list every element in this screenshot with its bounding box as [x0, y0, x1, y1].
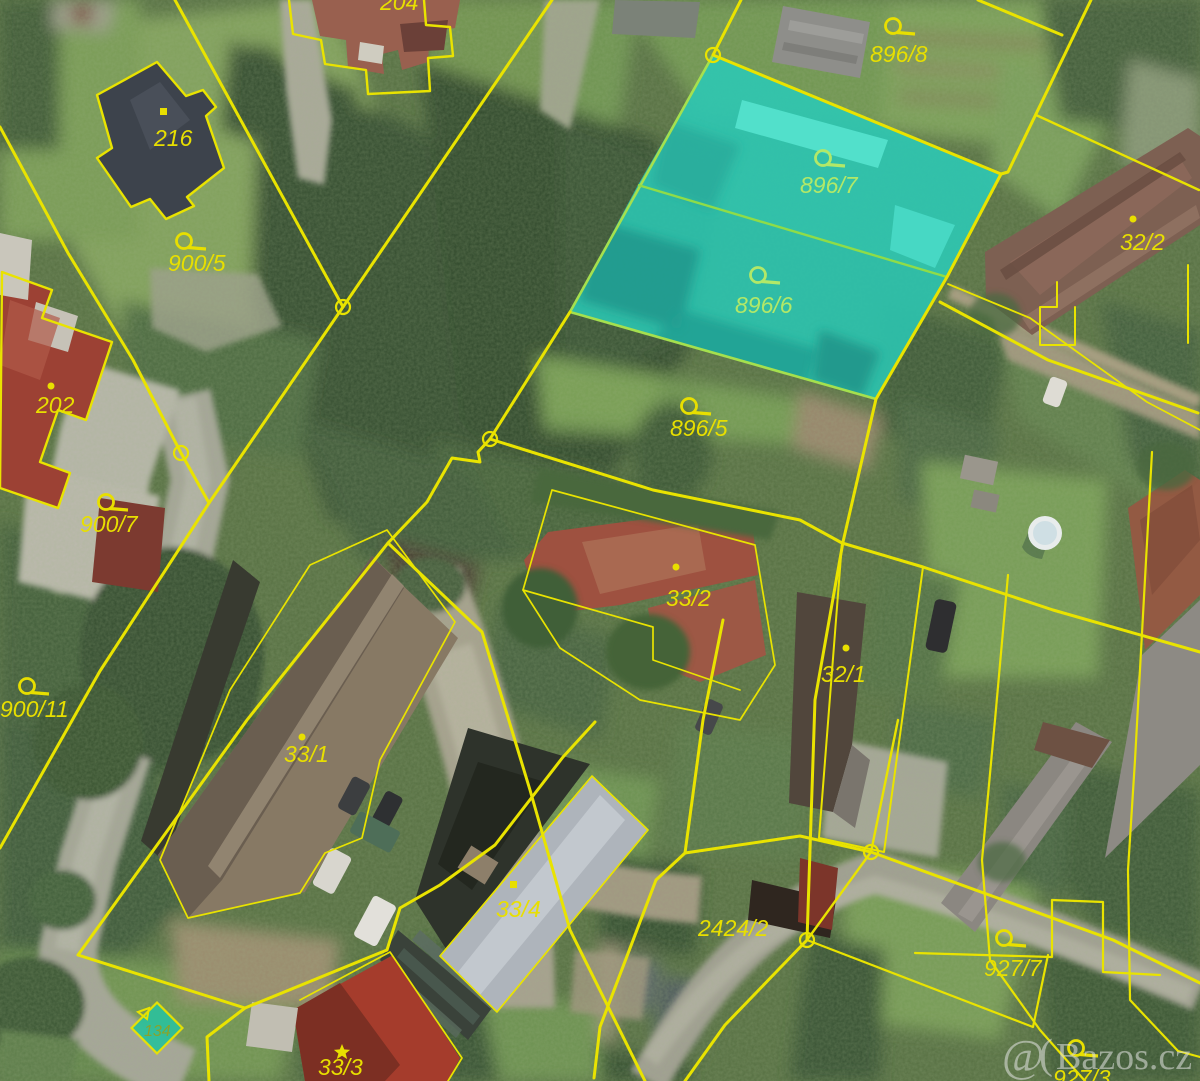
svg-text:33/3: 33/3 — [318, 1054, 363, 1080]
svg-text:204: 204 — [379, 0, 418, 15]
svg-text:896/5: 896/5 — [670, 415, 728, 441]
svg-text:896/8: 896/8 — [870, 41, 928, 67]
svg-text:Bazos.cz: Bazos.cz — [1056, 1036, 1192, 1078]
svg-text:216: 216 — [153, 125, 193, 151]
svg-text:33/2: 33/2 — [666, 585, 711, 611]
svg-text:33/1: 33/1 — [284, 741, 329, 767]
svg-text:2424/2: 2424/2 — [697, 915, 769, 941]
svg-text:927/7: 927/7 — [984, 955, 1043, 981]
svg-text:32/2: 32/2 — [1120, 229, 1165, 255]
svg-text:202: 202 — [35, 392, 75, 418]
svg-text:900/5: 900/5 — [168, 250, 226, 276]
svg-text:134: 134 — [144, 1023, 171, 1040]
svg-text:33/4: 33/4 — [496, 896, 541, 922]
svg-text:900/11: 900/11 — [0, 696, 69, 722]
svg-text:900/7: 900/7 — [80, 511, 139, 537]
svg-text:32/1: 32/1 — [821, 661, 866, 687]
svg-text:896/7: 896/7 — [800, 172, 859, 198]
svg-text:(: ( — [1039, 1032, 1053, 1078]
svg-text:896/6: 896/6 — [735, 292, 793, 318]
